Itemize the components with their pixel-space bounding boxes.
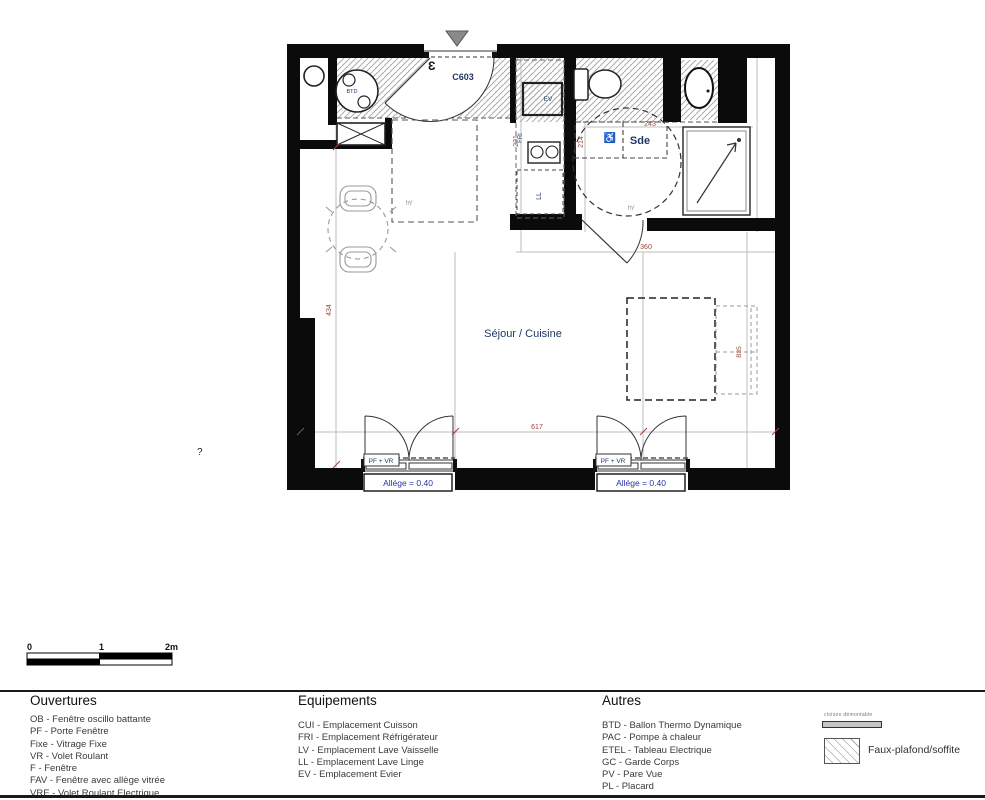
legend-autres-title: Autres	[602, 693, 742, 708]
entrance-mark: Ɛ	[428, 59, 436, 73]
scale-bar: 0 1 2m	[27, 642, 178, 665]
legend-item: F - Fenêtre	[30, 763, 165, 775]
legend-ouvertures-title: Ouvertures	[30, 693, 165, 708]
floor-plan-drawing: Ɛ C603 BTD EV FRI LL	[0, 0, 985, 690]
dim-243: 243	[644, 121, 656, 128]
dim-221: 221	[513, 135, 520, 147]
window1-tag: PF + VR	[369, 458, 394, 465]
cloison-demontable-icon	[822, 721, 882, 728]
legend-item: Fixe - Vitrage Fixe	[30, 739, 165, 751]
legend-autres: Autres BTD - Ballon Thermo Dynamique PAC…	[602, 693, 742, 794]
turning-circle	[573, 108, 681, 216]
dim-b35: B35	[736, 346, 743, 358]
legend-item: FRI - Emplacement Réfrigérateur	[298, 732, 439, 744]
dim-434: 434	[326, 304, 333, 316]
legend-item: VRE - Volet Roulant Electrique	[30, 788, 165, 800]
legend-item: GC - Garde Corps	[602, 757, 742, 769]
faux-plafond-label: Faux-plafond/soffite	[868, 744, 960, 756]
window2-allege: Allége = 0.40	[616, 478, 666, 488]
entry-zone	[392, 120, 477, 222]
legend-item: BTD - Ballon Thermo Dynamique	[602, 720, 742, 732]
scale-2m: 2m	[165, 642, 178, 652]
cooktop-icon	[528, 142, 560, 163]
dim-214: 214	[578, 136, 585, 148]
legend-item: PL - Placard	[602, 781, 742, 793]
wc-tank	[574, 69, 588, 100]
legend-item: LL - Emplacement Lave Linge	[298, 757, 439, 769]
legend-bottom-rule	[0, 795, 985, 798]
legend-equipements: Equipements CUI - Emplacement Cuisson FR…	[298, 693, 439, 781]
question-mark-note: ?	[197, 447, 203, 458]
legend-item: OB - Fenêtre oscillo battante	[30, 714, 165, 726]
cloison-demontable-label: cloison démontable	[824, 712, 872, 718]
note-glyph-2: hy	[627, 204, 636, 212]
window-2: PF + VR Allége = 0.40	[593, 416, 690, 491]
column-icon	[304, 66, 324, 86]
legend-item: ETEL - Tableau Electrique	[602, 745, 742, 757]
note-glyph-1: hy	[405, 199, 414, 207]
legend-item: LV - Emplacement Lave Vaisselle	[298, 745, 439, 757]
window2-tag: PF + VR	[601, 458, 626, 465]
window1-allege: Allége = 0.40	[383, 478, 433, 488]
legend-item: VR - Volet Roulant	[30, 751, 165, 763]
legend-item: PV - Pare Vue	[602, 769, 742, 781]
floorplan-page: Ɛ C603 BTD EV FRI LL	[0, 0, 985, 800]
dim-360: 360	[640, 244, 652, 251]
scale-0: 0	[27, 642, 32, 652]
wc-bowl-icon	[589, 70, 621, 98]
legend-item: FAV - Fenêtre avec allège vitrée	[30, 775, 165, 787]
dim-617: 617	[531, 424, 543, 431]
scale-1: 1	[99, 642, 104, 652]
ll-label: LL	[536, 192, 543, 200]
sde-door	[582, 220, 643, 263]
faux-plafond-swatch-icon	[824, 738, 860, 764]
legend-equipements-title: Equipements	[298, 693, 439, 708]
sejour-room-label: Séjour / Cuisine	[484, 328, 562, 340]
sde-room-label: Sde	[630, 135, 650, 147]
legend-item: CUI - Emplacement Cuisson	[298, 720, 439, 732]
washer-ll-zone	[517, 170, 563, 214]
legend-item: PAC - Pompe à chaleur	[602, 732, 742, 744]
legend-item: PF - Porte Fenêtre	[30, 726, 165, 738]
legend-top-rule	[0, 690, 985, 692]
accessibility-icon: ♿	[604, 131, 616, 144]
window-1: PF + VR Allége = 0.40	[361, 416, 457, 491]
unit-label: C603	[452, 72, 474, 82]
legend-item: EV - Emplacement Evier	[298, 769, 439, 781]
entrance-arrow-icon	[446, 31, 468, 46]
sink-ev-icon	[523, 83, 562, 115]
washbasin-icon	[685, 68, 713, 108]
legend-ouvertures: Ouvertures OB - Fenêtre oscillo battante…	[30, 693, 165, 800]
btd-label: BTD	[347, 89, 358, 95]
btd-room	[304, 66, 385, 145]
ev-label: EV	[544, 96, 553, 103]
